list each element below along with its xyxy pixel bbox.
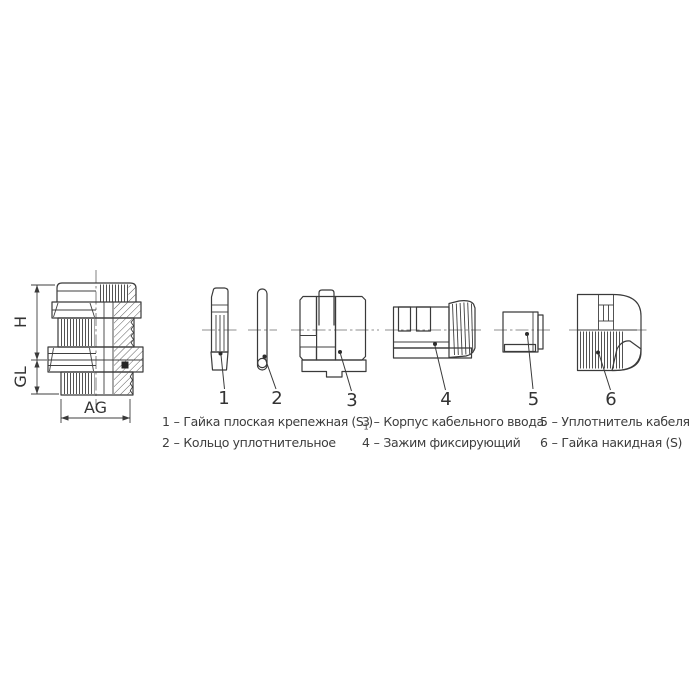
assembled-view: [48, 270, 143, 405]
legend-item-4: 4–Зажим фиксирующий: [362, 432, 544, 453]
legend-num: 5: [540, 414, 548, 429]
legend-num: 6: [540, 435, 548, 450]
legend-label: Гайка плоская крепежная (S: [183, 414, 363, 429]
legend-item-3: 3–Корпус кабельного ввода: [362, 411, 544, 432]
legend-num: 3: [362, 414, 370, 429]
part-4-clamp: 4: [394, 301, 476, 410]
cable-gland-datasheet: H GL AG: [0, 0, 700, 700]
legend-column-1: 1–Гайка плоская крепежная (S1) 2–Кольцо …: [162, 411, 373, 453]
legend-label: Уплотнитель кабеля: [561, 414, 689, 429]
part-number-6: 6: [605, 389, 616, 410]
legend-separator: –: [174, 414, 180, 429]
legend-item-5: 5–Уплотнитель кабеля: [540, 411, 690, 432]
leader-dot-2: [263, 355, 267, 359]
legend-label: Гайка накидная (S): [561, 435, 682, 450]
legend-item-2: 2–Кольцо уплотнительное: [162, 432, 373, 453]
part-1-flat-nut: 1: [211, 288, 230, 409]
legend-separator: –: [174, 435, 180, 450]
leader-line-2: [265, 358, 276, 389]
legend-item-1: 1–Гайка плоская крепежная (S1): [162, 411, 373, 432]
legend-column-2: 3–Корпус кабельного ввода 4–Зажим фиксир…: [362, 411, 544, 453]
dimension-ag: AG: [61, 398, 130, 423]
part-5-seal: 5: [503, 312, 543, 410]
legend-num: 1: [162, 414, 170, 429]
leader-dot-4: [433, 342, 437, 346]
part-6-cap-nut: 6: [578, 295, 642, 411]
legend-label: Корпус кабельного ввода: [383, 414, 543, 429]
legend-num: 2: [162, 435, 170, 450]
oring-section: [122, 362, 129, 369]
cap-section-hatch: [129, 285, 137, 302]
legend-separator: –: [552, 414, 558, 429]
part-number-2: 2: [271, 388, 282, 409]
leader-dot-5: [525, 332, 529, 336]
part-number-4: 4: [440, 389, 451, 410]
dim-label-h: H: [11, 316, 30, 328]
leader-line-1: [221, 355, 225, 389]
legend-separator: –: [374, 435, 380, 450]
leader-dot-3: [338, 350, 342, 354]
legend-separator: –: [552, 435, 558, 450]
legend-column-3: 5–Уплотнитель кабеля 6–Гайка накидная (S…: [540, 411, 690, 453]
legend-item-6: 6–Гайка накидная (S): [540, 432, 690, 453]
legend-label: Зажим фиксирующий: [383, 435, 520, 450]
leader-dot-1: [219, 352, 223, 356]
legend-label: Кольцо уплотнительное: [183, 435, 335, 450]
part-number-1: 1: [218, 388, 229, 409]
part-3-body: 3: [300, 290, 366, 411]
part-2-sealing-ring: 2: [258, 289, 283, 409]
legend-num: 4: [362, 435, 370, 450]
part-number-3: 3: [346, 390, 357, 411]
part-number-5: 5: [528, 389, 539, 410]
dim-label-ag: AG: [84, 398, 107, 417]
dim-label-gl: GL: [11, 366, 30, 387]
leader-line-4: [435, 346, 446, 390]
cap-knurl: [98, 285, 128, 302]
legend-separator: –: [374, 414, 380, 429]
